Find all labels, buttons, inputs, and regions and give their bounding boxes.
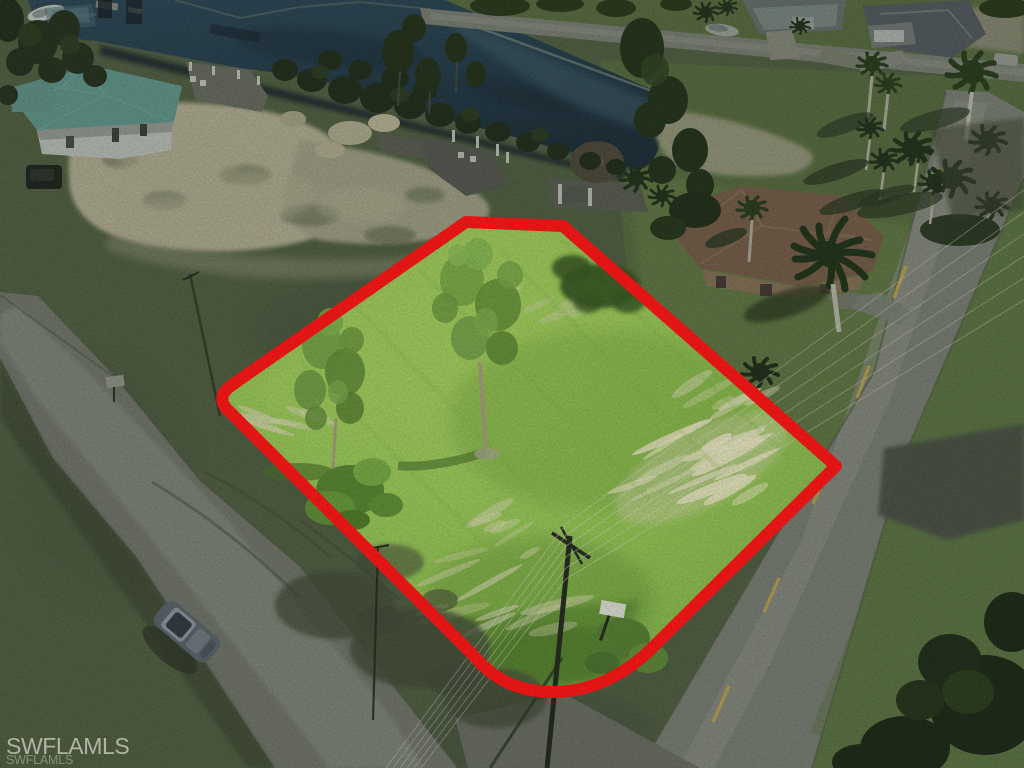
svg-text:SWFLAMLS: SWFLAMLS [6,753,73,767]
